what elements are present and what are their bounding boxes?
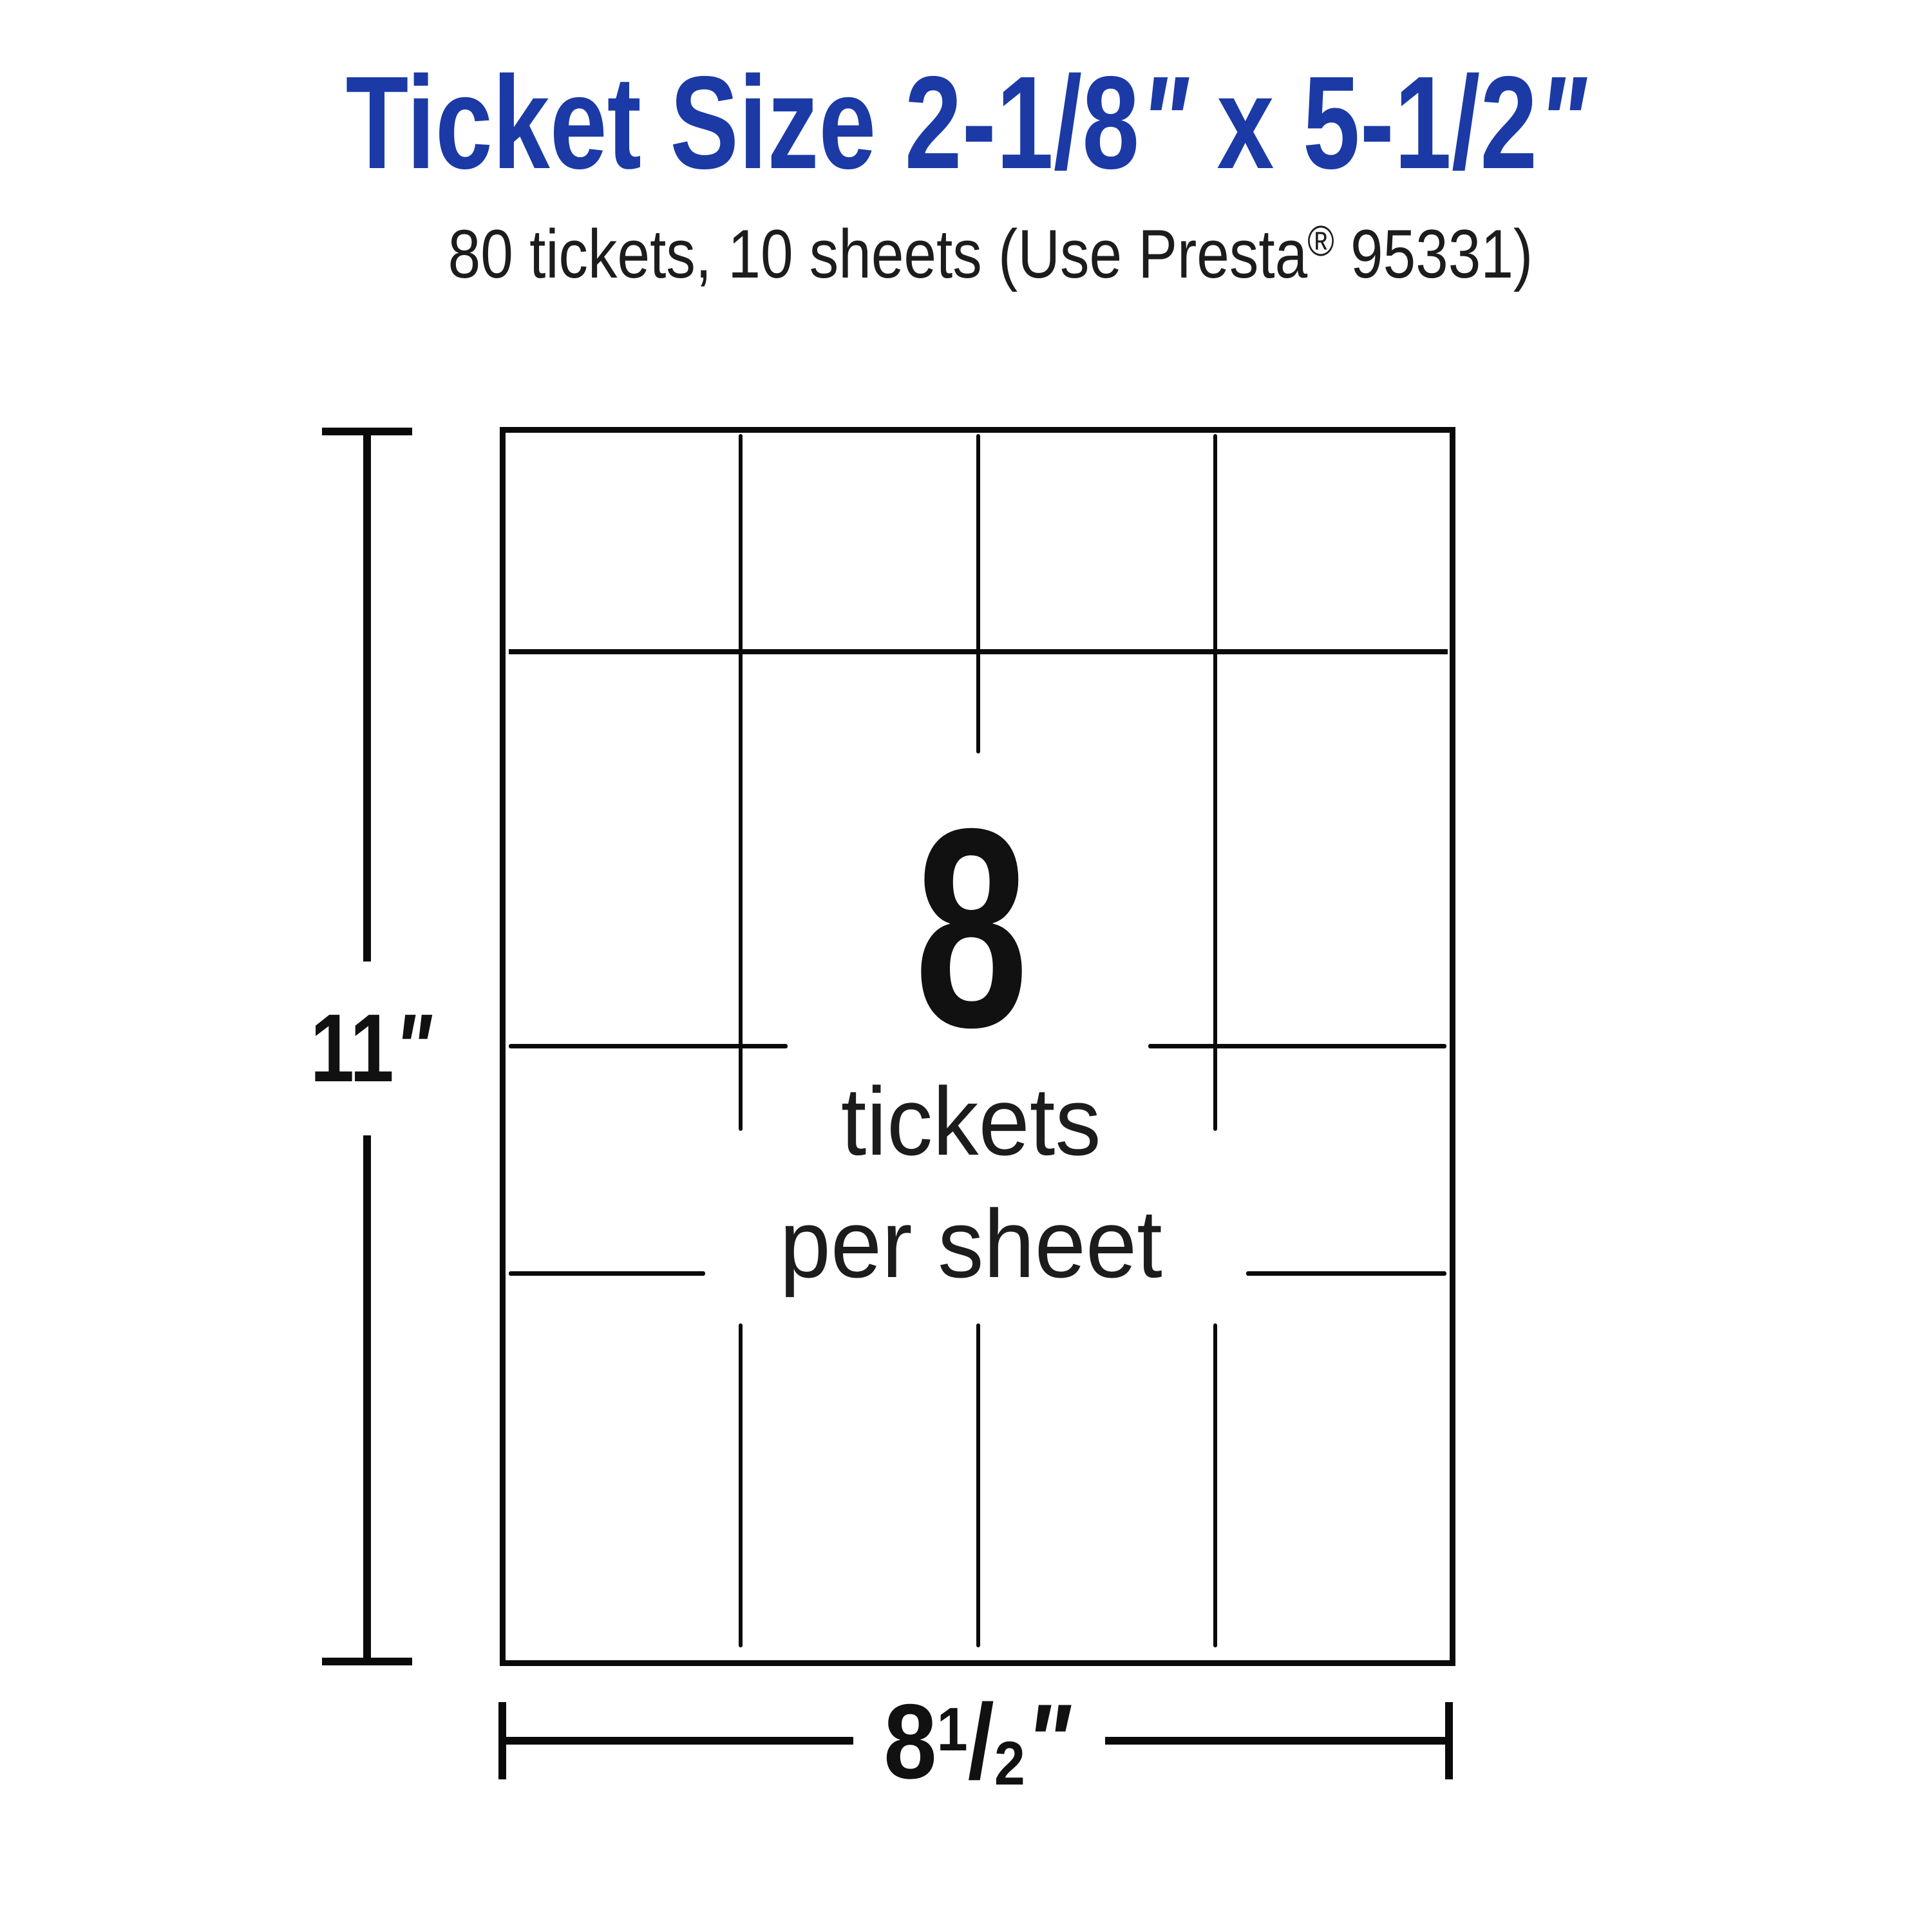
page-title: Ticket Size 2-1/8" x 5-1/2": [0, 57, 1932, 189]
registered-trademark-mark: ®: [1307, 218, 1334, 265]
subtitle-part2: 95331): [1334, 215, 1533, 292]
title-part1: Ticket Size 2-1/8: [346, 49, 1140, 196]
height-dimension-label: 11": [242, 999, 500, 1096]
caption-line1: tickets: [841, 1067, 1101, 1175]
subtitle-text: 80 tickets, 10 sheets (Use Presta® 95331…: [448, 220, 1533, 289]
width-fraction-numerator: 1: [937, 1695, 968, 1764]
column-divider-line-1-lower: [739, 1323, 743, 1647]
column-divider-line-3-lower: [1213, 1323, 1217, 1647]
width-dimension-label-text: 81/2": [884, 1689, 1070, 1795]
title-inch-mark-1: ": [1139, 49, 1188, 196]
ticket-template-diagram: Ticket Size 2-1/8" x 5-1/2" 80 tickets, …: [0, 0, 1932, 1932]
subtitle: 80 tickets, 10 sheets (Use Presta® 95331…: [49, 220, 1932, 289]
height-dimension-tick-top: [322, 428, 412, 435]
title-inch-mark-2: ": [1537, 49, 1586, 196]
width-dimension-line-right: [1105, 1737, 1449, 1745]
column-divider-line-2-upper: [976, 434, 980, 753]
width-dimension-label: 81/2": [832, 1689, 1122, 1795]
height-dimension-tick-bottom: [322, 1658, 412, 1665]
tickets-per-sheet-caption: ticketsper sheet: [488, 1060, 1454, 1305]
tickets-per-sheet-count-text: 8: [914, 787, 1028, 1070]
column-divider-line-2-lower: [976, 1323, 980, 1647]
width-dimension-tick-left: [498, 1702, 506, 1779]
height-inch-mark: ": [394, 994, 431, 1102]
stub-perforation-line-row1: [509, 649, 1448, 654]
width-whole-number: 8: [884, 1682, 937, 1801]
width-fraction-denominator: 2: [994, 1729, 1025, 1798]
height-dimension-line-lower: [363, 1135, 371, 1662]
width-inch-mark: ": [1025, 1682, 1070, 1801]
title-part2: x 5-1/2: [1188, 49, 1537, 196]
height-dimension-line-upper: [363, 431, 371, 961]
height-value: 11: [310, 994, 394, 1102]
caption-line2: per sheet: [780, 1189, 1162, 1298]
width-fraction-slash: /: [967, 1682, 994, 1801]
tickets-per-sheet-count: 8: [488, 787, 1454, 1070]
width-dimension-tick-right: [1445, 1702, 1453, 1779]
page-title-text: Ticket Size 2-1/8" x 5-1/2": [346, 57, 1586, 189]
height-dimension-label-text: 11": [310, 999, 431, 1096]
width-dimension-line-left: [502, 1737, 853, 1745]
caption-lines: ticketsper sheet: [780, 1060, 1162, 1305]
subtitle-part1: 80 tickets, 10 sheets (Use Presta: [448, 215, 1308, 292]
